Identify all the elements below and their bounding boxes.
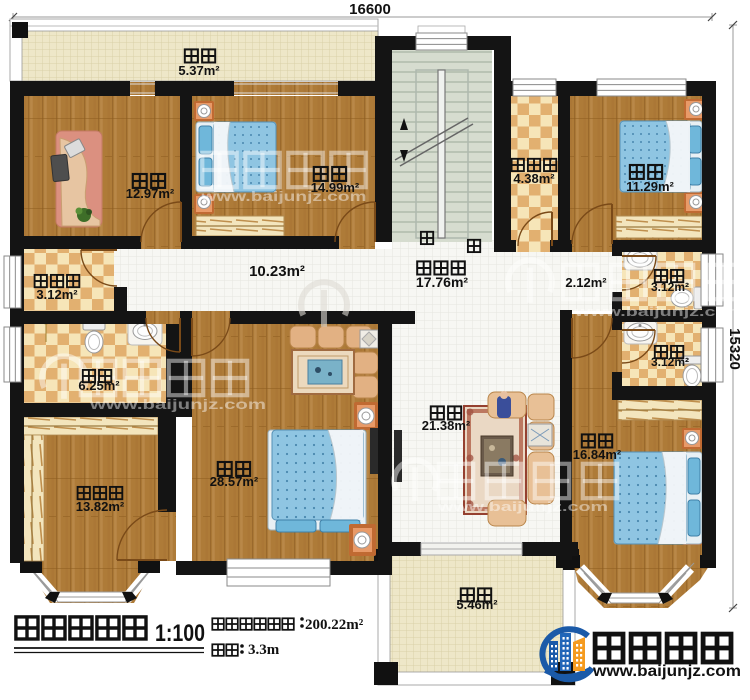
svg-text:21.38m²: 21.38m² [422, 418, 471, 433]
svg-text:3.12m²: 3.12m² [651, 355, 689, 369]
svg-text:16.84m²: 16.84m² [573, 447, 622, 462]
svg-text:16600: 16600 [349, 1, 391, 18]
svg-text:14.99m²: 14.99m² [311, 180, 360, 195]
svg-text:10.23m²: 10.23m² [249, 263, 305, 280]
svg-text:3.12m²: 3.12m² [651, 280, 689, 294]
svg-text:200.22m²: 200.22m² [305, 617, 364, 633]
svg-text:11.29m²: 11.29m² [626, 179, 674, 194]
svg-text:28.57m²: 28.57m² [210, 474, 259, 489]
svg-text:6.25m²: 6.25m² [78, 378, 120, 393]
svg-text:www.baijunjz.com: www.baijunjz.com [89, 396, 266, 412]
svg-text:12.97m²: 12.97m² [126, 186, 175, 201]
svg-text:17.76m²: 17.76m² [416, 274, 468, 290]
svg-text:13.82m²: 13.82m² [76, 499, 125, 514]
svg-text:www.baijunjz.com: www.baijunjz.com [592, 663, 741, 680]
svg-text:3.3m: 3.3m [248, 642, 280, 658]
svg-text:4.38m²: 4.38m² [513, 171, 555, 186]
svg-text:www.baijunjz.com: www.baijunjz.com [573, 304, 745, 319]
svg-text:5.46m²: 5.46m² [456, 597, 498, 612]
svg-text:2.12m²: 2.12m² [565, 275, 607, 290]
svg-text:15320: 15320 [726, 328, 743, 370]
svg-text:3.12m²: 3.12m² [36, 287, 78, 302]
svg-text:www.baijunjz.com: www.baijunjz.com [436, 499, 608, 514]
svg-text:1:100: 1:100 [155, 620, 205, 647]
svg-text:5.37m²: 5.37m² [178, 63, 220, 78]
